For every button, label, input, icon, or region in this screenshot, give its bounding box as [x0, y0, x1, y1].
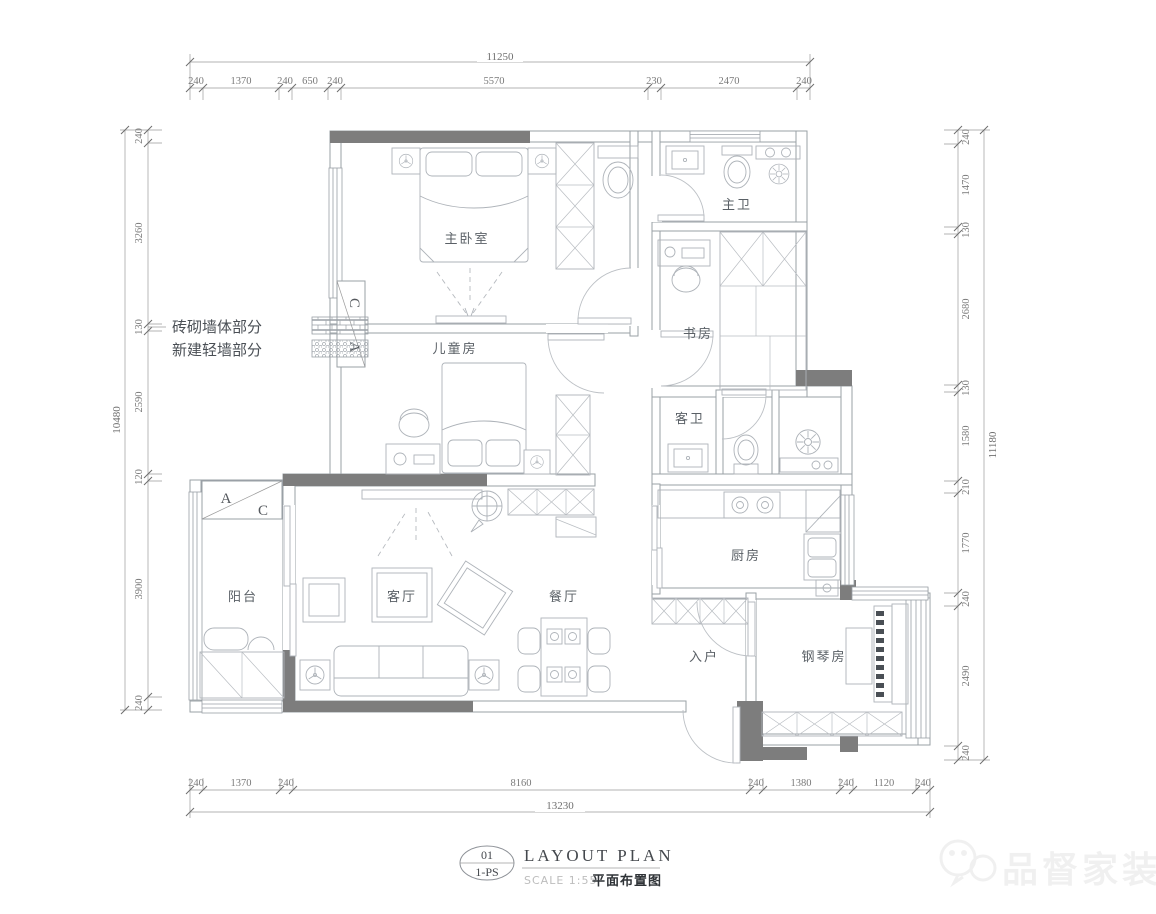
dim-top-seg: 650: [302, 76, 318, 87]
dimension-chain-left: 10480 240 3260 130 2590 120 3900 240: [111, 126, 162, 714]
room-label-balcony: 阳台: [228, 590, 258, 605]
laundry-counter: [780, 458, 838, 472]
arrow: [465, 308, 474, 316]
dim-top-seg: 240: [796, 76, 812, 87]
dimension-chain-top: 11250 240 1370 240 650 240 5570 230 2470…: [186, 50, 814, 100]
dim-right-seg: 1470: [961, 175, 972, 196]
dim-bottom-seg: 1380: [791, 778, 812, 789]
sink-master-bath: [666, 146, 704, 174]
window-balcony-bottom: [202, 700, 282, 713]
dim-right-seg: 1580: [961, 426, 972, 447]
kitchen-counter: [658, 490, 840, 532]
entry-closet: [652, 598, 748, 624]
title-block: 01 1-PS LAYOUT PLAN SCALE 1:55 平面布置图: [460, 846, 674, 889]
room-label-master-bath: 主卫: [722, 198, 752, 213]
room-label-living: 客厅: [387, 589, 417, 605]
plant-icon: [475, 666, 493, 684]
drawing-title: LAYOUT PLAN: [524, 846, 674, 865]
washing-machine-icon: [796, 430, 820, 454]
dim-right-total: 11180: [987, 431, 999, 458]
window-master-left: [329, 168, 342, 298]
room-label-kids-room: 儿童房: [432, 341, 477, 357]
furniture: [200, 143, 908, 736]
dim-right-seg: 240: [961, 129, 972, 145]
projection-lines: [437, 268, 502, 316]
stove: [724, 492, 780, 518]
dim-bottom-seg: 8160: [511, 778, 532, 789]
room-label-kitchen: 厨房: [731, 548, 761, 564]
dim-top-seg: 240: [188, 76, 204, 87]
window-bath-top: [690, 131, 760, 142]
dim-bottom-total: 13230: [546, 800, 574, 812]
window-piano-top: [852, 587, 928, 600]
toilet-guest-bath: [734, 435, 758, 474]
shower-icon: [769, 164, 789, 184]
bath-counter: [756, 146, 800, 159]
dim-right-seg: 1770: [961, 533, 972, 554]
floor-plan-page: 11250 240 1370 240 650 240 5570 230 2470…: [0, 0, 1156, 914]
chair-study: [672, 266, 700, 292]
dim-left-seg: 240: [134, 695, 145, 711]
door-master-bedroom: [578, 268, 631, 324]
floor-plan-drawing: 11250 240 1370 240 650 240 5570 230 2470…: [0, 0, 1156, 914]
tv-console-living: [362, 490, 482, 499]
room-label-entry: 入户: [689, 649, 719, 665]
hallway-cabinet: [508, 489, 596, 537]
watermark: 品督家装: [941, 841, 1156, 891]
watermark-text: 品督家装: [1002, 850, 1156, 891]
toilet-master-bath: [722, 146, 752, 188]
balcony-cabinets: [200, 628, 284, 698]
legend-light-label: 新建轻墙部分: [172, 341, 262, 359]
dim-left-seg: 3260: [134, 223, 145, 244]
legend-brick-swatch: [312, 317, 368, 334]
door-master-bath: [658, 175, 704, 221]
plant-icon: [306, 666, 324, 684]
chair-kids: [399, 409, 429, 437]
sheet-code: 1-PS: [475, 865, 498, 879]
dim-left-seg: 2590: [134, 392, 145, 413]
drawing-scale: SCALE 1:55: [524, 874, 597, 887]
desk-study: [658, 240, 710, 266]
dim-bottom-seg: 240: [278, 778, 294, 789]
dim-right-seg: 130: [961, 222, 972, 238]
dim-right-seg: 210: [961, 479, 972, 495]
dim-right-seg: 2680: [961, 299, 972, 320]
projection-lines-living: [378, 508, 452, 556]
dim-right-seg: 130: [961, 380, 972, 396]
dim-top-seg: 2470: [719, 76, 740, 87]
wardrobe-master: [556, 143, 594, 269]
window-kitchen-right: [841, 495, 854, 585]
marker-letter-a: A: [221, 491, 232, 507]
piano: [846, 604, 908, 704]
dim-bottom-seg: 1120: [874, 778, 895, 789]
piano-room-cabinets: [762, 712, 902, 736]
room-label-dining: 餐厅: [549, 589, 579, 605]
dim-right-seg: 240: [961, 745, 972, 761]
dim-left-total: 10480: [111, 406, 123, 434]
dimension-chain-bottom: 13230 240 1370 240 8160 240 1380 240 112…: [186, 778, 934, 818]
dim-left-seg: 240: [134, 128, 145, 144]
section-marker-horizontal: A C: [202, 481, 282, 519]
dimension-chain-right: 11180 240 1470 130 2680 130 1580 210 177…: [944, 126, 999, 764]
dim-left-seg: 3900: [134, 579, 145, 600]
windows: [189, 131, 930, 738]
door-kids-room: [548, 334, 604, 393]
dim-top-seg: 240: [327, 76, 343, 87]
dim-bottom-seg: 240: [915, 778, 931, 789]
drawing-subtitle: 平面布置图: [592, 873, 662, 889]
dim-top-seg: 1370: [231, 76, 252, 87]
room-label-master-bedroom: 主卧室: [444, 231, 489, 247]
dim-left-seg: 130: [134, 319, 145, 335]
door-entry: [683, 707, 740, 763]
dim-right-seg: 2490: [961, 666, 972, 687]
dim-bottom-seg: 240: [188, 778, 204, 789]
room-label-piano: 钢琴房: [801, 649, 846, 665]
wardrobe-kids: [556, 395, 590, 475]
dim-top-seg: 240: [277, 76, 293, 87]
room-label-guest-bath: 客卫: [675, 411, 705, 427]
dim-top-seg: 230: [646, 76, 662, 87]
room-label-study: 书房: [683, 326, 713, 342]
dining-set: [518, 618, 610, 696]
marker-letter-c: C: [346, 298, 362, 308]
window-piano-right: [906, 598, 930, 738]
compass-symbol: [471, 491, 502, 532]
marker-letter-c: C: [258, 503, 268, 519]
dim-top-total: 11250: [486, 51, 514, 63]
wechat-icon: [941, 841, 995, 883]
tatami-study: [720, 232, 806, 390]
desk-kids: [386, 444, 440, 474]
tv-angled: [437, 561, 512, 635]
dim-bottom-seg: 1370: [231, 778, 252, 789]
dim-bottom-seg: 240: [838, 778, 854, 789]
dim-top-seg: 5570: [484, 76, 505, 87]
dim-right-seg: 240: [961, 591, 972, 607]
kitchen-sink: [804, 534, 840, 580]
legend-brick-label: 砖砌墙体部分: [172, 318, 262, 336]
sofa: [334, 646, 468, 696]
dim-left-seg: 120: [134, 469, 145, 485]
legend-light-swatch: [312, 340, 368, 357]
rug-square: [303, 578, 345, 622]
tv-console-bedroom: [436, 316, 506, 323]
dim-bottom-seg: 240: [748, 778, 764, 789]
sink-guest-bath: [668, 444, 708, 472]
bed-kids: [442, 363, 526, 473]
drawing-number: 01: [481, 848, 493, 862]
